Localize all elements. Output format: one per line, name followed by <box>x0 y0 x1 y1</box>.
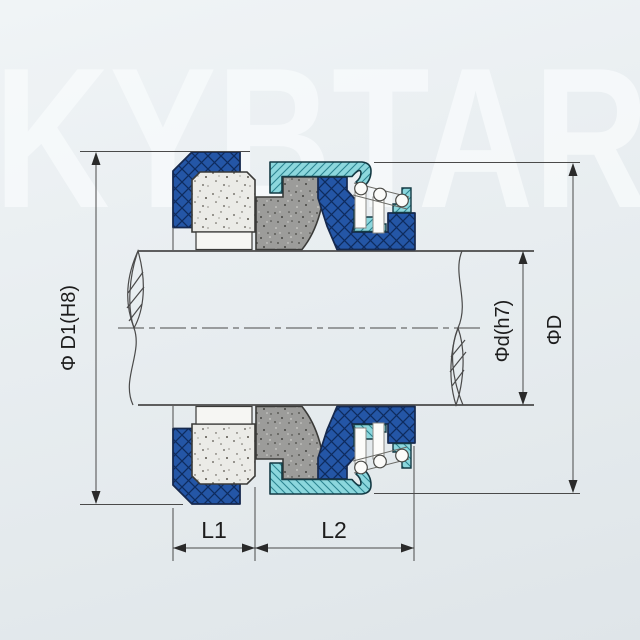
spring-wire-circle <box>374 188 387 201</box>
dim-shaft-arrow-up <box>519 251 528 264</box>
dim-outer-arrow-down <box>569 480 578 493</box>
dim-shaft-arrow-down <box>519 392 528 405</box>
dim-l1-arrow-right <box>242 544 255 553</box>
mechanical-seal-drawing: KYBTAR <box>0 0 640 640</box>
dim-bore-arrow-down <box>92 491 101 504</box>
stationary-seat <box>192 172 255 232</box>
dim-l2-label: L2 <box>321 517 347 543</box>
dim-shaft <box>519 251 528 405</box>
dim-l1-label: L1 <box>201 517 227 543</box>
spring-wire-circle <box>355 182 368 195</box>
dim-bore-label: Φ D1(H8) <box>58 285 80 371</box>
shaft <box>118 251 534 405</box>
spring-wire-circle <box>396 194 409 207</box>
dim-outer-label: ΦD <box>544 315 566 345</box>
seat-foot <box>196 232 252 250</box>
dim-shaft-label: Φd(h7) <box>492 300 514 363</box>
dim-l2-arrow-right <box>401 544 414 553</box>
seal-assembly-bottom <box>173 406 415 504</box>
seal-cross-section-diagram: KYBTAR <box>0 0 640 640</box>
dim-l1-arrow-left <box>173 544 186 553</box>
dim-l2-arrow-left <box>255 544 268 553</box>
